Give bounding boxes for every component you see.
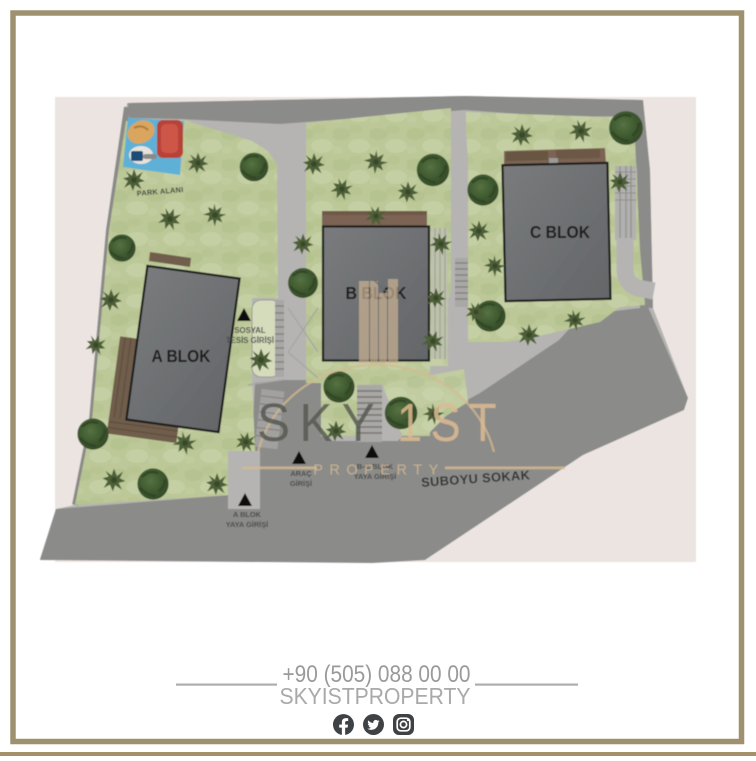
svg-text:SOSYAL: SOSYAL (234, 326, 266, 335)
svg-text:GİRİŞİ: GİRİŞİ (290, 479, 312, 488)
svg-text:TESİS GİRİŞİ: TESİS GİRİŞİ (226, 336, 274, 345)
svg-text:ARAÇ: ARAÇ (290, 469, 312, 478)
svg-text:SKYISTPROPERTY: SKYISTPROPERTY (280, 683, 471, 709)
svg-text:A BLOK: A BLOK (152, 346, 211, 366)
svg-text:C BLOK: C BLOK (530, 222, 590, 242)
svg-text:1ST: 1ST (397, 393, 505, 453)
svg-text:SKY: SKY (257, 393, 384, 453)
svg-text:YAYA GİRİŞİ: YAYA GİRİŞİ (226, 520, 268, 529)
svg-text:A BLOK: A BLOK (233, 510, 262, 519)
